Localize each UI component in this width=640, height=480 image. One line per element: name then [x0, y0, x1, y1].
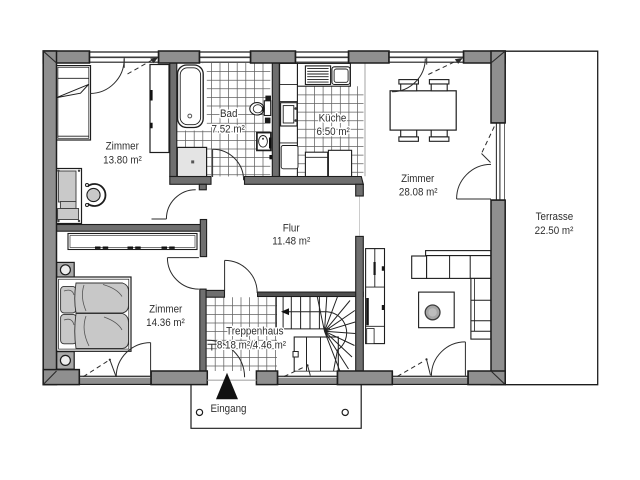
svg-text:Flur: Flur [283, 222, 300, 235]
svg-text:22.50 m²: 22.50 m² [535, 224, 574, 237]
svg-text:Zimmer: Zimmer [401, 172, 435, 185]
svg-text:13.80 m²: 13.80 m² [103, 154, 142, 167]
svg-text:Küche: Küche [319, 112, 347, 125]
svg-text:Terrasse: Terrasse [536, 211, 574, 224]
svg-text:7.52 m²: 7.52 m² [212, 123, 246, 136]
svg-text:6.50 m²: 6.50 m² [317, 125, 351, 138]
svg-text:Eingang: Eingang [211, 403, 247, 416]
svg-text:14.36 m²: 14.36 m² [146, 317, 185, 330]
svg-text:Treppenhaus: Treppenhaus [226, 325, 283, 338]
svg-text:Zimmer: Zimmer [106, 140, 140, 153]
svg-text:Bad: Bad [220, 108, 238, 121]
svg-text:28.08 m²: 28.08 m² [399, 186, 438, 199]
svg-text:11.48 m²: 11.48 m² [272, 235, 310, 248]
svg-text:Zimmer: Zimmer [149, 303, 183, 316]
svg-text:8.18 m²/4.46 m²: 8.18 m²/4.46 m² [217, 339, 287, 352]
